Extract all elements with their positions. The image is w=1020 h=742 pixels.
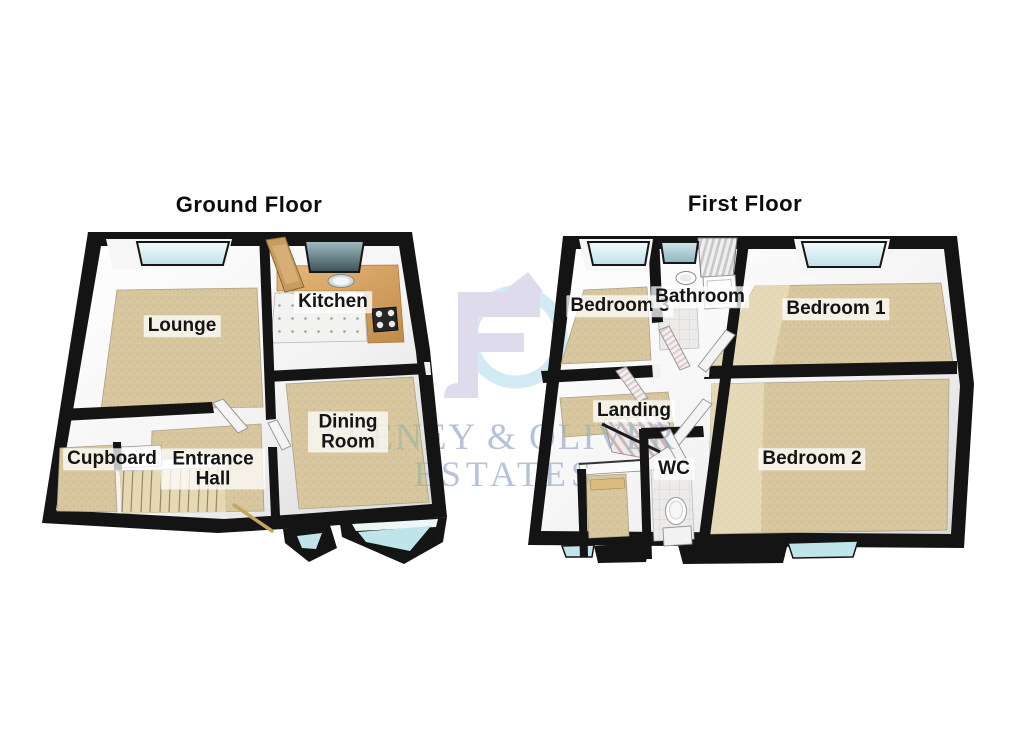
kitchen-window [305, 241, 364, 272]
lounge-window [106, 239, 232, 269]
hob-icon [372, 307, 398, 332]
bedroom3-window [579, 239, 653, 271]
floorplan-image: FEENEY & OLIVER ESTATES [0, 0, 1020, 742]
dining-room-label: Dining Room [308, 411, 388, 452]
kitchen-label: Kitchen [294, 291, 372, 313]
sink-icon [676, 272, 696, 285]
floorplan-canvas: FEENEY & OLIVER ESTATES Ground Floor Fir… [0, 0, 1020, 742]
shower-icon [698, 238, 737, 277]
lounge-label: Lounge [144, 315, 221, 337]
landing-window [562, 545, 594, 557]
kitchen-sink-icon [328, 275, 354, 288]
bathroom-window [661, 242, 698, 263]
wc-label: WC [654, 458, 694, 480]
ground-floor-plan [42, 232, 447, 564]
cupboard-label: Cupboard [63, 448, 161, 470]
gf-porch [283, 525, 337, 562]
bedroom1-label: Bedroom 1 [782, 298, 889, 320]
wall-end-cap [652, 364, 661, 378]
bathroom-label: Bathroom [651, 286, 749, 308]
gf-lounge-floor [101, 288, 263, 410]
ground-floor-title: Ground Floor [176, 192, 323, 218]
first-floor-title: First Floor [688, 191, 802, 217]
gf-bay-window [340, 517, 447, 564]
landing-label: Landing [593, 400, 675, 422]
bedroom2-label: Bedroom 2 [758, 448, 865, 470]
entrance-hall-label: Entrance Hall [161, 448, 265, 489]
watermark-line2: ESTATES [414, 454, 596, 494]
bedroom2-window [788, 541, 858, 558]
bedroom1-window [794, 239, 890, 274]
fo-monogram-logo [444, 272, 561, 398]
